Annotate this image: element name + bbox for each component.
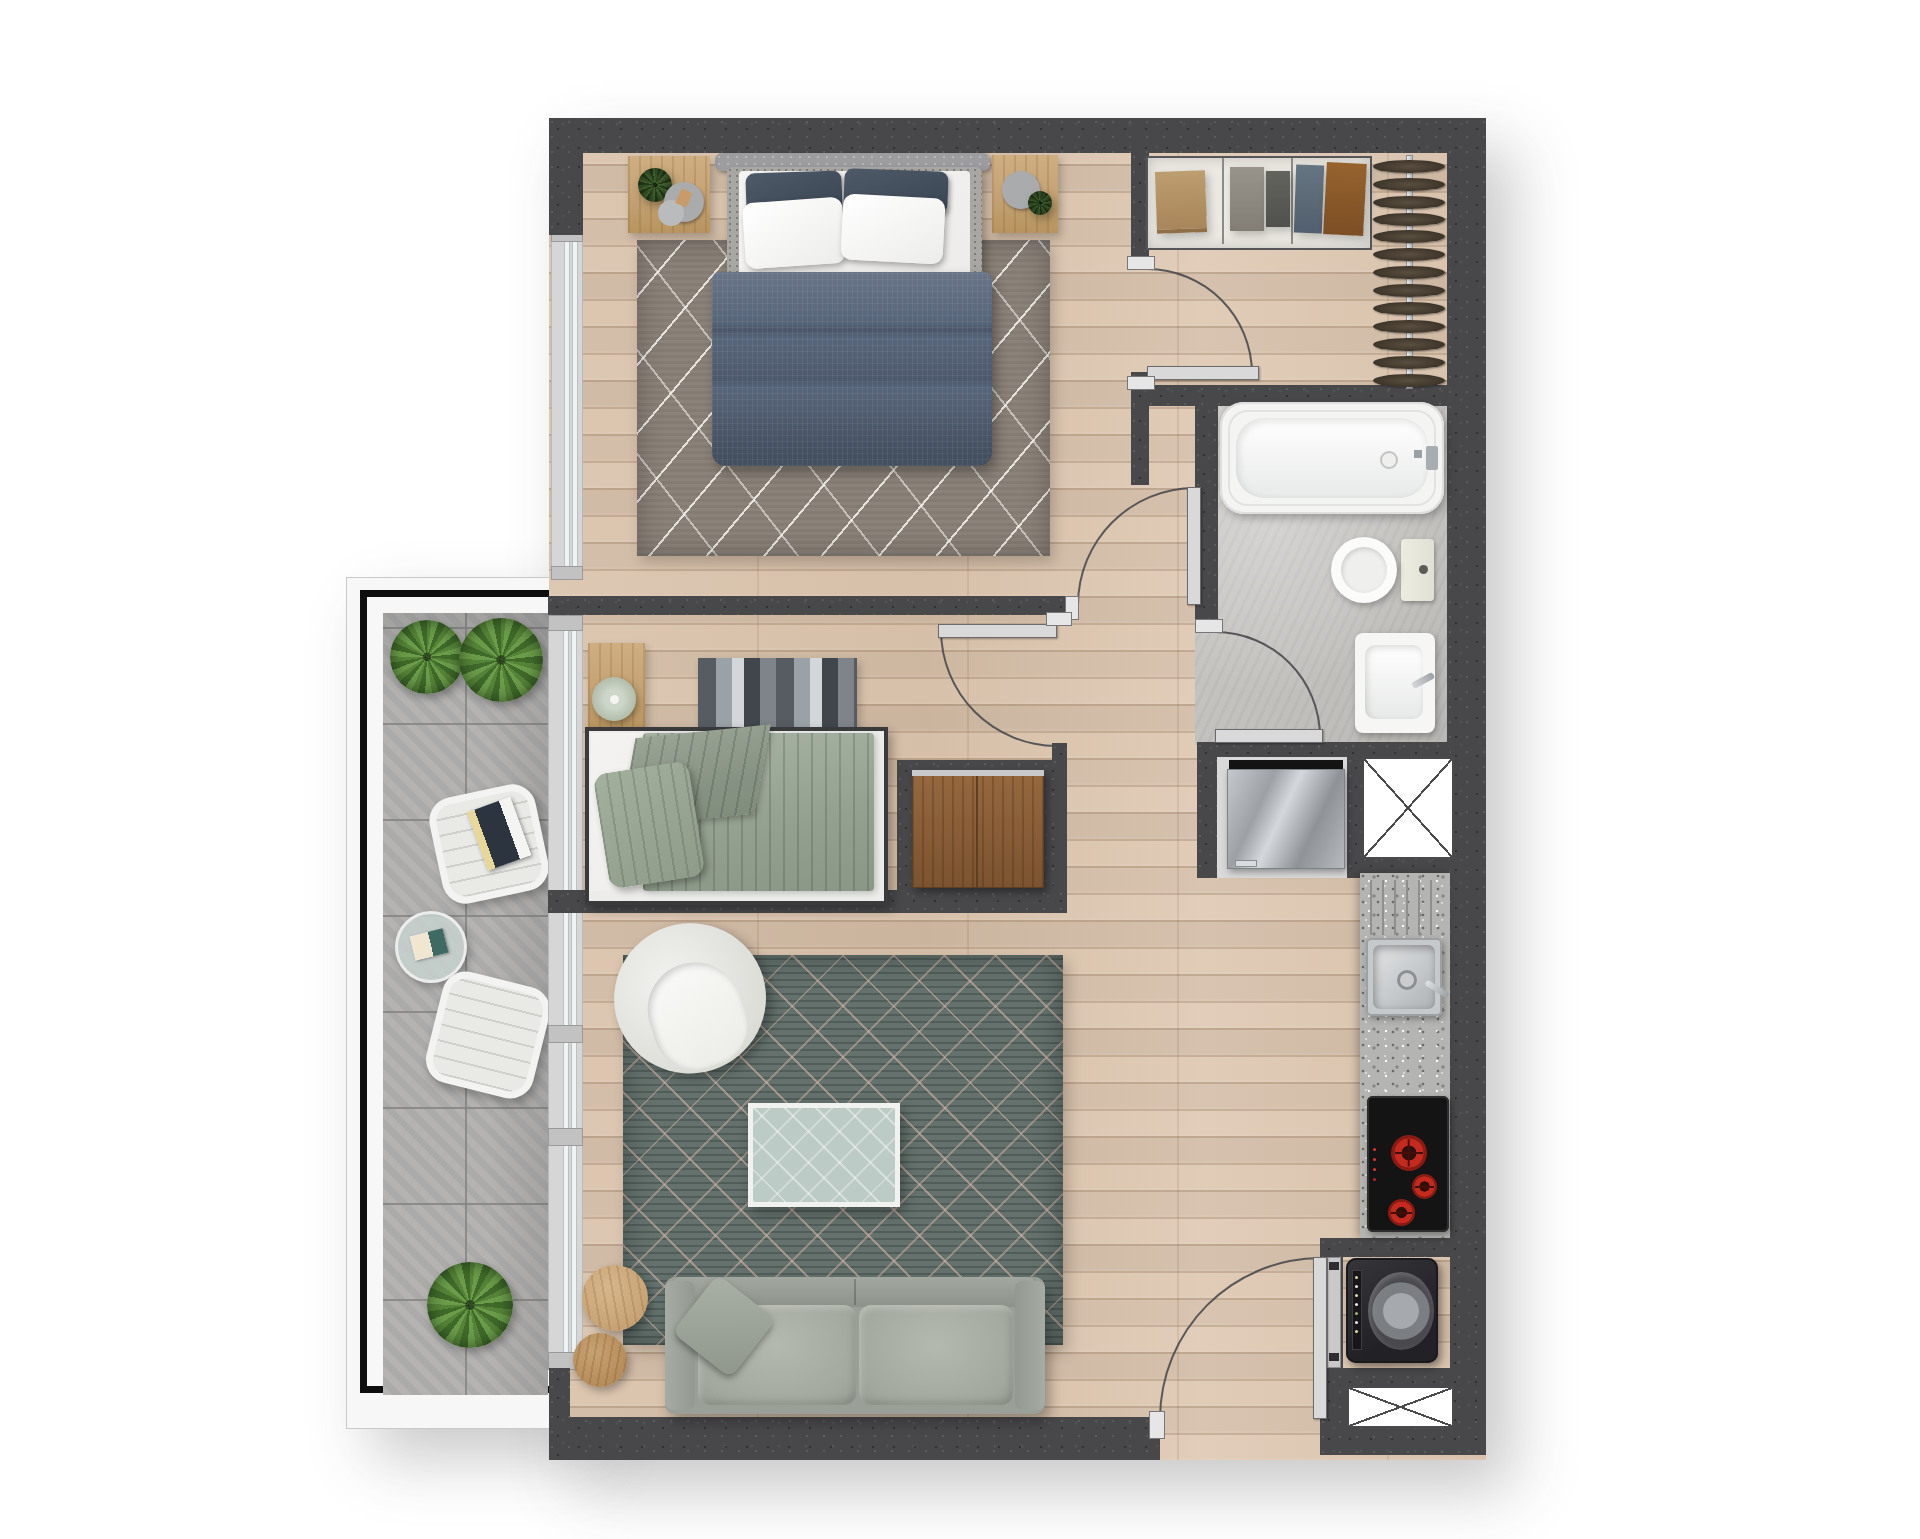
balcony-lounge-chair-1 bbox=[425, 780, 553, 908]
cooktop bbox=[1367, 1096, 1449, 1232]
coffee-table bbox=[748, 1103, 900, 1207]
hinge-tick bbox=[1329, 1262, 1339, 1270]
toilet-seat bbox=[1341, 547, 1387, 593]
railing-line-left bbox=[360, 590, 367, 1393]
sliding-glass-wall bbox=[548, 615, 583, 1368]
wall-top bbox=[549, 118, 1486, 153]
glass-pane bbox=[572, 619, 576, 1364]
wall-master-bedroom-south bbox=[548, 596, 1075, 615]
hanger bbox=[1373, 248, 1445, 261]
flush-button bbox=[1419, 565, 1428, 574]
door-jamb bbox=[1149, 1411, 1165, 1439]
window-frame-cap bbox=[551, 566, 583, 580]
fridge-handle bbox=[1235, 860, 1257, 867]
floor-plan-canvas bbox=[0, 0, 1920, 1539]
door-jamb bbox=[1195, 619, 1223, 633]
single-bed bbox=[585, 727, 888, 905]
wardrobe bbox=[912, 770, 1044, 888]
sofa-cushion-right bbox=[859, 1305, 1013, 1405]
wardrobe-divider bbox=[976, 776, 978, 888]
service-shaft-upper bbox=[1362, 757, 1454, 859]
hanger bbox=[1373, 213, 1445, 226]
nightstand-right bbox=[992, 155, 1058, 233]
bedroom2-headboard-art bbox=[698, 658, 857, 728]
bed2-pillow bbox=[593, 760, 706, 890]
toilet bbox=[1331, 537, 1435, 603]
magazine-stack bbox=[467, 797, 531, 871]
folded-clothes-blue bbox=[1294, 165, 1324, 234]
wall-fridge-nook-left bbox=[1197, 757, 1217, 878]
fridge-body bbox=[1227, 769, 1345, 869]
entry-door-frame bbox=[1327, 1257, 1341, 1368]
magazine bbox=[409, 928, 448, 960]
side-table-large bbox=[582, 1265, 648, 1331]
sofa bbox=[665, 1277, 1045, 1414]
shelf-divider bbox=[1222, 158, 1224, 244]
nightstand-plant bbox=[1028, 191, 1052, 215]
hanger bbox=[1373, 178, 1445, 191]
hanger bbox=[1373, 338, 1445, 351]
toilet-tank bbox=[1401, 539, 1434, 601]
hanger bbox=[1373, 230, 1445, 243]
wardrobe-track bbox=[912, 770, 1044, 776]
drainboard bbox=[1370, 880, 1440, 935]
double-bed bbox=[710, 150, 994, 470]
white-pillow-right bbox=[840, 193, 945, 264]
folded-clothes-tan bbox=[1155, 170, 1207, 234]
master-bedroom-window bbox=[551, 228, 583, 578]
glass-pane bbox=[565, 240, 569, 566]
sofa-back-split bbox=[854, 1279, 856, 1305]
closet-door-leaf bbox=[1147, 366, 1259, 380]
door-jamb bbox=[1127, 256, 1155, 270]
hanger bbox=[1373, 356, 1445, 369]
hanger bbox=[1373, 302, 1445, 315]
duvet bbox=[712, 272, 992, 466]
washer-led bbox=[1355, 1276, 1358, 1279]
railing-line-top bbox=[360, 590, 552, 597]
service-shaft-lower bbox=[1347, 1386, 1454, 1428]
hanger bbox=[1373, 374, 1445, 387]
entrance-door-leaf bbox=[1313, 1257, 1327, 1419]
burner-large bbox=[1391, 1135, 1427, 1171]
tub-handle bbox=[1414, 450, 1422, 458]
burner-line bbox=[1415, 1186, 1434, 1188]
washing-machine bbox=[1346, 1258, 1438, 1363]
tub-drain bbox=[1380, 451, 1398, 469]
balcony bbox=[347, 578, 570, 1428]
tub-faucet bbox=[1426, 446, 1438, 470]
wall-fridge-nook-mid bbox=[1347, 757, 1362, 878]
hanger bbox=[1373, 160, 1445, 173]
slider-joint bbox=[548, 615, 583, 631]
burner-medium bbox=[1412, 1174, 1437, 1199]
kitchen-sink bbox=[1366, 938, 1442, 1016]
hanger bbox=[1373, 284, 1445, 297]
closet-shelf-unit bbox=[1146, 156, 1372, 250]
balcony-plant-1 bbox=[390, 620, 464, 694]
balcony-plant-2 bbox=[459, 618, 543, 702]
sink-drain bbox=[1397, 970, 1417, 990]
hanger bbox=[1373, 196, 1445, 209]
fridge-top bbox=[1229, 760, 1343, 769]
hanger bbox=[1373, 320, 1445, 333]
folded-clothes-gray bbox=[1230, 167, 1264, 231]
balcony-plant-3 bbox=[427, 1262, 513, 1348]
slider-joint bbox=[548, 1128, 583, 1146]
burner-line bbox=[1391, 1212, 1412, 1214]
door-jamb bbox=[1127, 376, 1155, 390]
wall-bottom-left-corner bbox=[549, 1368, 570, 1460]
folded-clothes-brown bbox=[1323, 162, 1367, 236]
white-pillow-left bbox=[742, 197, 846, 270]
wall-bottom bbox=[549, 1417, 1160, 1460]
bathroom-door-leaf bbox=[1215, 729, 1323, 743]
bedroom2-door-leaf bbox=[938, 624, 1057, 638]
bedroom2-nightstand bbox=[588, 643, 645, 732]
door-jamb bbox=[1046, 612, 1072, 626]
washbasin bbox=[1355, 633, 1435, 733]
sofa-armrest-right bbox=[1015, 1281, 1045, 1410]
refrigerator bbox=[1227, 760, 1345, 874]
burner-small bbox=[1388, 1199, 1415, 1226]
shelf-divider bbox=[1291, 158, 1293, 244]
tub-basin bbox=[1236, 418, 1428, 498]
master-bedroom-door-leaf bbox=[1187, 487, 1201, 605]
glass-pane bbox=[564, 619, 568, 1364]
bathtub bbox=[1220, 402, 1444, 514]
hinge-tick bbox=[1329, 1353, 1339, 1361]
washer-panel bbox=[1352, 1270, 1362, 1350]
wall-fridge-nook-top bbox=[1197, 742, 1450, 757]
closet-hanging-rail bbox=[1370, 156, 1448, 388]
nightstand-left bbox=[628, 156, 710, 233]
wall-left-top bbox=[549, 118, 583, 235]
lamp-finial bbox=[610, 695, 619, 704]
slider-joint bbox=[548, 1025, 583, 1043]
hanger bbox=[1373, 266, 1445, 279]
glass-pane bbox=[573, 240, 577, 566]
washer-drum bbox=[1368, 1272, 1434, 1350]
cooktop-control bbox=[1373, 1148, 1376, 1151]
side-table-small bbox=[573, 1333, 627, 1387]
folded-clothes-charcoal bbox=[1266, 171, 1290, 227]
